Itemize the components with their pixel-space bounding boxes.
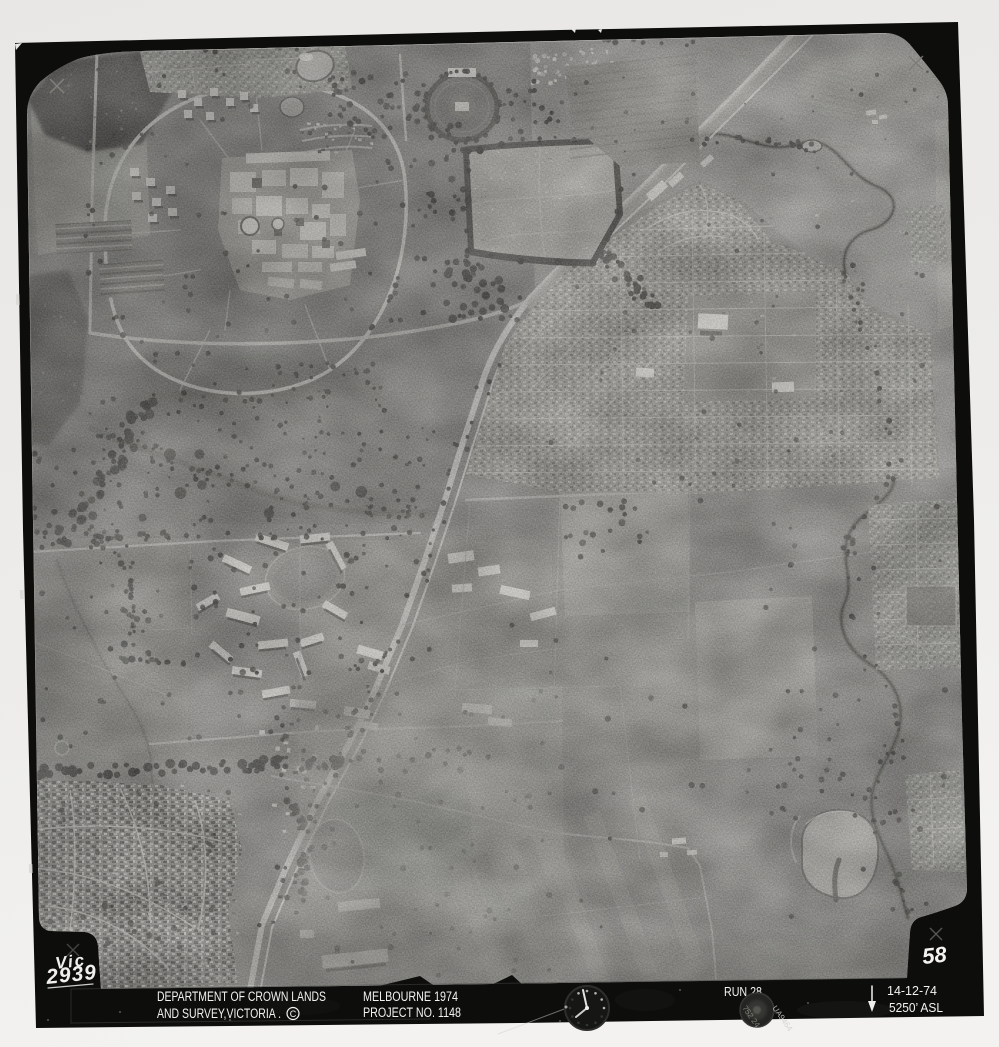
svg-text:PROJECT NO. 1148: PROJECT NO. 1148 <box>363 1005 461 1020</box>
svg-text:58: 58 <box>921 941 949 969</box>
svg-text:5250’ ASL: 5250’ ASL <box>889 1000 943 1015</box>
svg-text:AND SURVEY,VICTORIA .: AND SURVEY,VICTORIA . <box>157 1006 281 1021</box>
svg-text:14-12-74: 14-12-74 <box>887 983 937 998</box>
svg-text:1097: 1097 <box>211 972 238 986</box>
svg-text:MELBOURNE 1974: MELBOURNE 1974 <box>363 989 458 1004</box>
svg-text:DEPARTMENT OF CROWN LANDS: DEPARTMENT OF CROWN LANDS <box>157 989 326 1004</box>
svg-text:(60): (60) <box>134 975 152 986</box>
svg-text:C: C <box>290 1009 297 1019</box>
